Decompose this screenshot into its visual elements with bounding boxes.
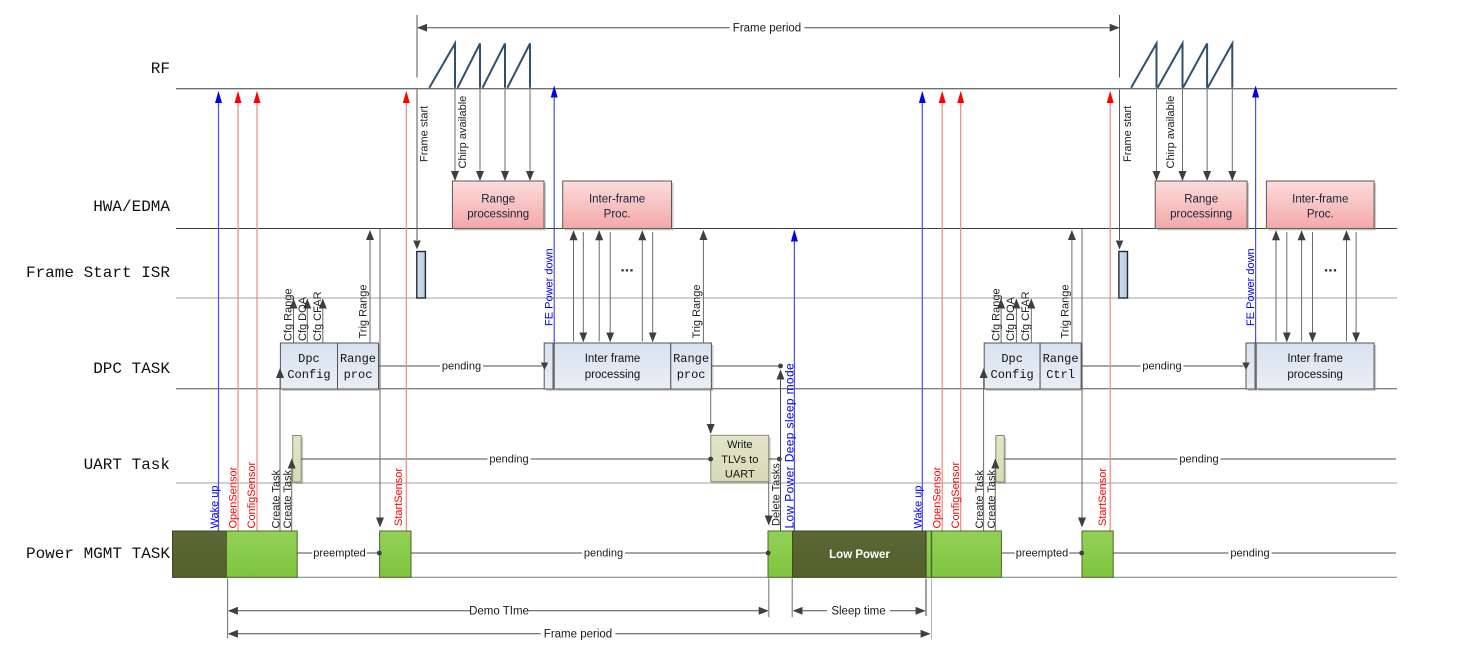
- svg-text:pending: pending: [584, 548, 623, 560]
- svg-text:Write: Write: [727, 439, 752, 451]
- svg-text:Frame Start ISR: Frame Start ISR: [26, 264, 170, 282]
- svg-text:Create Task: Create Task: [271, 470, 283, 529]
- svg-text:OpenSensor: OpenSensor: [228, 466, 240, 528]
- svg-text:Dpc: Dpc: [1001, 352, 1023, 366]
- svg-text:Frame start: Frame start: [419, 106, 431, 162]
- svg-text:Config: Config: [991, 368, 1034, 382]
- svg-text:pending: pending: [1230, 548, 1269, 560]
- svg-text:TLVs to: TLVs to: [721, 454, 758, 466]
- svg-text:Trig Range: Trig Range: [358, 284, 370, 338]
- svg-text:pending: pending: [442, 361, 481, 373]
- svg-text:Create Task: Create Task: [974, 470, 986, 529]
- svg-text:Inter frame: Inter frame: [1287, 353, 1343, 365]
- svg-text:Frame period: Frame period: [544, 629, 612, 641]
- svg-text:Cfg DOA: Cfg DOA: [297, 296, 309, 341]
- svg-text:pending: pending: [1179, 454, 1218, 466]
- svg-text:Low Power: Low Power: [829, 549, 890, 561]
- svg-text:HWA/EDMA: HWA/EDMA: [93, 198, 170, 216]
- svg-text:Trig Range: Trig Range: [691, 284, 703, 338]
- svg-text:Trig Range: Trig Range: [1059, 284, 1071, 338]
- svg-text:Chirp available: Chirp available: [1165, 96, 1177, 169]
- svg-text:StartSensor: StartSensor: [393, 468, 405, 526]
- svg-text:preempted: preempted: [1016, 548, 1069, 560]
- svg-text:processinng: processinng: [1170, 209, 1232, 221]
- svg-text:pending: pending: [1142, 361, 1181, 373]
- svg-text:Wake up: Wake up: [209, 485, 221, 528]
- svg-text:Range: Range: [673, 352, 709, 366]
- svg-text:Cfg Range: Cfg Range: [991, 288, 1003, 341]
- svg-text:Create Task: Create Task: [986, 470, 998, 529]
- svg-text:Chirp available: Chirp available: [457, 96, 469, 169]
- svg-text:Inter frame: Inter frame: [585, 353, 641, 365]
- svg-text:...: ...: [620, 259, 633, 276]
- svg-text:Config: Config: [287, 368, 330, 382]
- svg-text:processing: processing: [585, 369, 641, 381]
- svg-text:UART Task: UART Task: [84, 456, 170, 474]
- svg-text:Sleep time: Sleep time: [831, 606, 885, 618]
- svg-text:FE Power down: FE Power down: [544, 248, 556, 326]
- svg-text:Range: Range: [340, 352, 376, 366]
- svg-text:Inter-frame: Inter-frame: [589, 194, 645, 206]
- svg-text:Range: Range: [481, 194, 515, 206]
- svg-text:Create Task: Create Task: [282, 470, 294, 529]
- svg-text:Cfg CFAR: Cfg CFAR: [312, 291, 324, 341]
- svg-text:Wake up: Wake up: [913, 485, 925, 528]
- svg-text:Power MGMT TASK: Power MGMT TASK: [26, 545, 170, 563]
- svg-text:proc: proc: [677, 368, 706, 382]
- svg-text:processing: processing: [1287, 369, 1343, 381]
- svg-text:Delete Tasks: Delete Tasks: [770, 463, 782, 526]
- svg-text:RF: RF: [151, 60, 170, 78]
- svg-text:Dpc: Dpc: [298, 352, 320, 366]
- svg-text:proc: proc: [344, 368, 373, 382]
- svg-text:Range: Range: [1043, 352, 1079, 366]
- svg-text:preempted: preempted: [313, 548, 366, 560]
- svg-text:Frame period: Frame period: [733, 23, 801, 35]
- svg-text:Proc.: Proc.: [604, 209, 631, 221]
- svg-text:ConfigSensor: ConfigSensor: [246, 462, 258, 529]
- svg-text:DPC TASK: DPC TASK: [93, 360, 170, 378]
- svg-text:processinng: processinng: [467, 209, 529, 221]
- svg-text:Frame start: Frame start: [1122, 106, 1134, 162]
- svg-text:Inter-frame: Inter-frame: [1292, 194, 1348, 206]
- svg-text:Ctrl: Ctrl: [1046, 368, 1075, 382]
- svg-text:OpenSensor: OpenSensor: [932, 466, 944, 528]
- svg-text:Low Power Deep sleep mode: Low Power Deep sleep mode: [782, 363, 796, 529]
- svg-text:Cfg CFAR: Cfg CFAR: [1020, 291, 1032, 341]
- svg-text:UART: UART: [725, 469, 755, 481]
- svg-text:FE Power down: FE Power down: [1245, 248, 1257, 326]
- svg-text:Cfg Range: Cfg Range: [283, 288, 295, 341]
- svg-text:pending: pending: [489, 454, 528, 466]
- svg-text:Demo TIme: Demo TIme: [469, 606, 529, 618]
- svg-text:...: ...: [1324, 259, 1337, 276]
- svg-text:Range: Range: [1184, 194, 1218, 206]
- svg-text:Proc.: Proc.: [1307, 209, 1334, 221]
- svg-text:StartSensor: StartSensor: [1097, 468, 1109, 526]
- svg-text:ConfigSensor: ConfigSensor: [950, 462, 962, 529]
- svg-text:Cfg DOA: Cfg DOA: [1005, 296, 1017, 341]
